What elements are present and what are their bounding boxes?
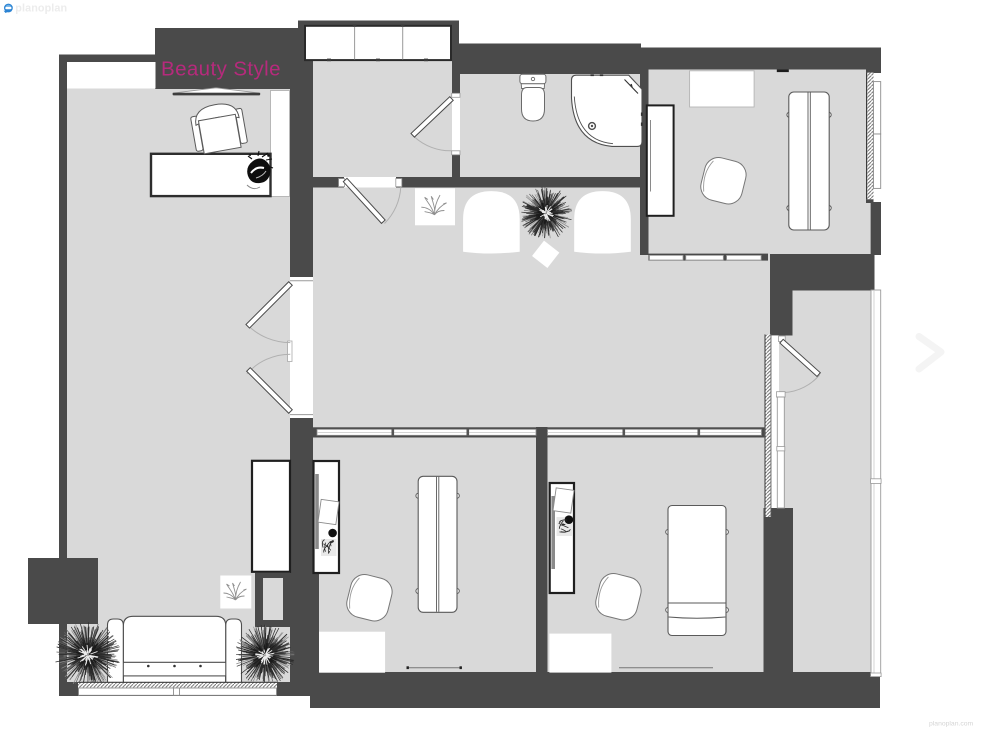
svg-text:planoplan.com: planoplan.com bbox=[929, 721, 974, 728]
svg-text:Beauty Style: Beauty Style bbox=[161, 58, 281, 81]
svg-text:planoplan: planoplan bbox=[15, 3, 67, 15]
